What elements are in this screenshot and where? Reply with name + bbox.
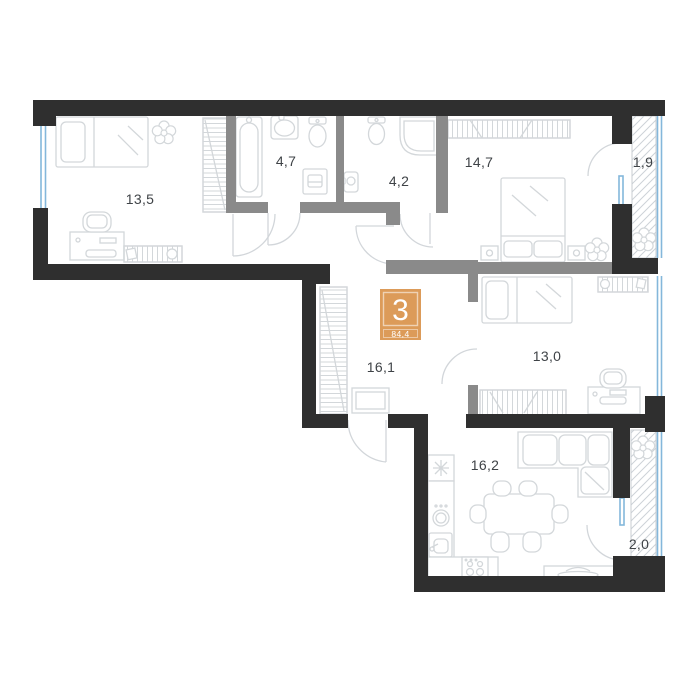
shelf-icon [124,246,182,262]
bathtub-icon [236,113,262,197]
badge-total-area: 84,4 [391,329,409,339]
room-area-label-hallway: 16,1 [367,359,395,375]
floor-plan: 13,5 4,7 4,2 14,7 1,9 16,1 13,0 16,2 2,0… [0,0,700,700]
room-area-label-bathroom-1: 4,7 [276,153,296,169]
floor-plan-canvas: 13,5 4,7 4,2 14,7 1,9 16,1 13,0 16,2 2,0… [0,0,700,700]
nightstand-icon [568,246,585,260]
unit-badge: 3 84,4 [380,289,421,340]
dining-table-icon [470,481,568,552]
door-entrance [348,420,386,462]
shelf-rack-icon [448,120,570,138]
fridge-icon [428,455,454,481]
balcony-door-leaf [619,176,623,206]
double-bed-icon [501,178,565,262]
balcony-door-leaf [620,498,624,525]
badge-rooms-count: 3 [392,294,409,327]
shower-icon [400,117,438,155]
plant-icon [152,121,175,144]
room-area-label-bedroom-left: 13,5 [126,191,154,207]
wardrobe-icon [203,118,227,212]
washing-machine-icon [303,169,327,194]
desk-icon [70,212,124,260]
toilet-icon [368,117,385,145]
bed-icon [56,117,148,167]
door-bedroom-right [442,349,477,384]
room-area-label-balcony-bottom: 2,0 [629,536,649,552]
room-area-label-bedroom-top-right: 14,7 [465,154,493,170]
door-balcony-bottom [587,525,622,560]
wardrobe-icon [320,287,347,414]
door-balcony-top [588,143,621,176]
sink-icon [271,113,298,139]
rug-icon [352,388,389,413]
room-area-label-balcony-top: 1,9 [633,154,653,170]
wardrobe-icon [480,390,566,415]
toilet-icon [309,117,326,147]
stove-icon [428,557,498,577]
bed-icon [482,277,572,323]
room-area-label-bathroom-2: 4,2 [389,173,409,189]
desk-icon [588,369,640,414]
door-bathroom-2 [400,213,433,247]
room-area-label-bedroom-right: 13,0 [533,348,561,364]
nightstand-icon [481,246,498,260]
door-bedroom-left [233,214,275,256]
window-left [41,124,46,208]
room-area-label-kitchen-living: 16,2 [471,457,499,473]
door-corridor [356,226,394,264]
kitchen-sink-icon [429,533,452,557]
window-right-bottom [658,432,662,576]
window-right-top [658,116,662,258]
plant-icon [585,238,608,261]
window-right-middle [658,276,662,396]
shelf-icon [598,277,648,292]
